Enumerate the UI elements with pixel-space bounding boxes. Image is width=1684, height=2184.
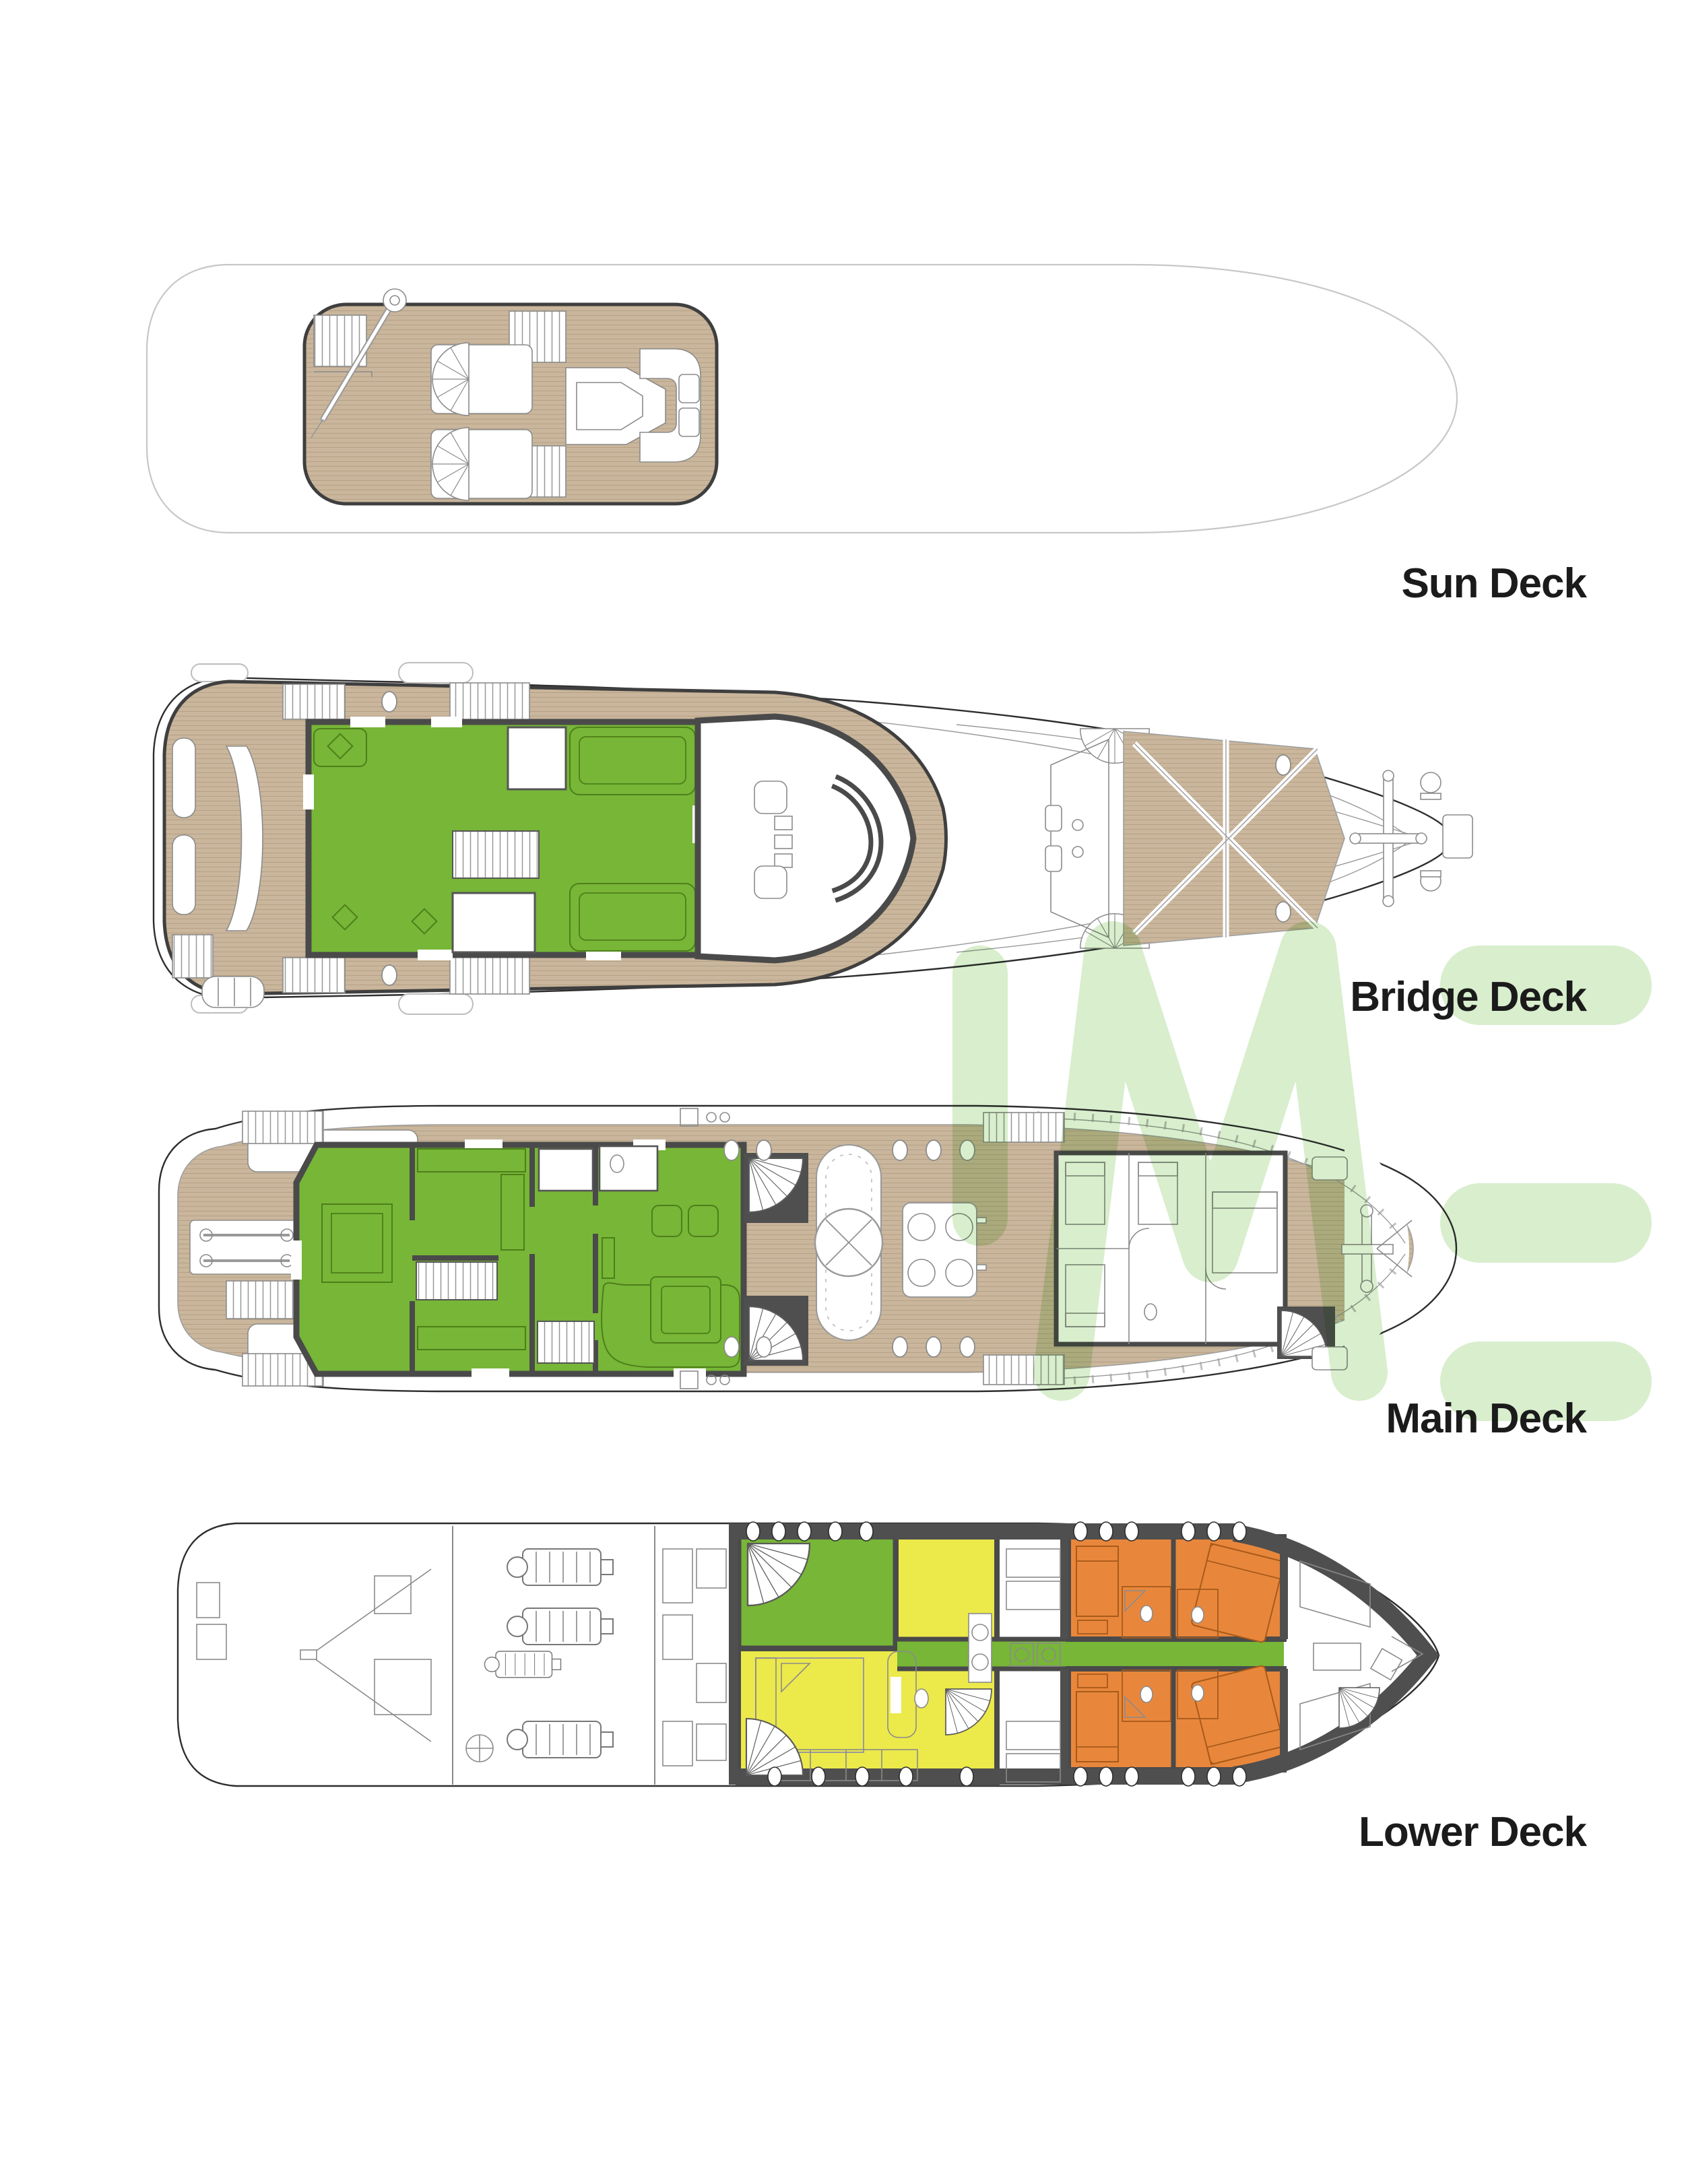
sun-deck-label: Sun Deck [1401,563,1586,605]
corridor [897,1639,1284,1669]
lower-deck-label: Lower Deck [1359,1812,1586,1853]
main-deck-label: Main Deck [1386,1398,1586,1440]
dinghy [202,977,264,1007]
dining-table [322,1204,392,1282]
sun-lounger-bottom [431,428,532,500]
sky-lounge [303,717,703,960]
sun-deck-plan [147,265,1457,533]
skylight-oval [815,1145,882,1340]
bridge-deck-label: Bridge Deck [1350,977,1586,1018]
page: { "page": {"background": "#ffffff"}, "de… [0,0,1684,2181]
deckhouse-interior [291,1139,744,1379]
deck-plan-sheet: IME Sun Deck Bridge Deck Main Deck Lower… [0,0,1684,2181]
day-head [600,1146,657,1191]
sun-lounger-top [431,343,532,416]
lower-deck-plan [178,1522,1439,1786]
tender-platform [1124,731,1345,946]
watermark-letter-i [952,946,1008,1246]
